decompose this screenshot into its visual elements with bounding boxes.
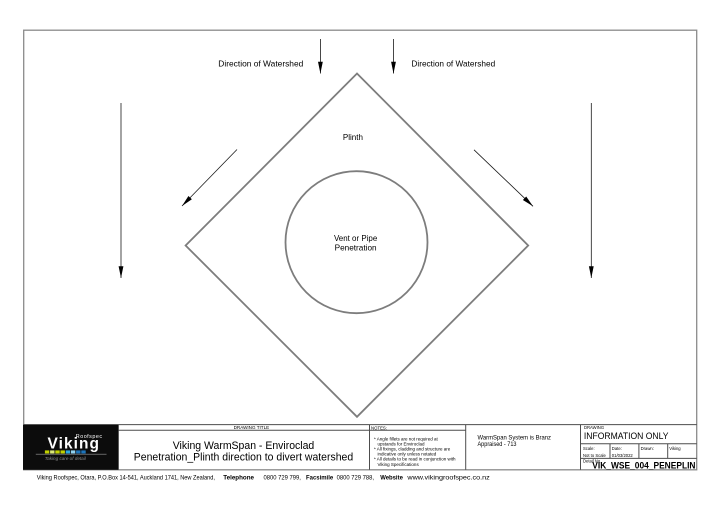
svg-text:Vent or Pipe: Vent or Pipe [334, 233, 378, 243]
svg-text:Plinth: Plinth [343, 132, 363, 142]
svg-text:Not to Scale: Not to Scale [583, 453, 606, 458]
svg-text:01/03/2022: 01/03/2022 [612, 453, 634, 458]
svg-text:NOTES:: NOTES: [371, 425, 387, 430]
svg-text:Facsimile: Facsimile [306, 475, 334, 482]
svg-text:0800 729 799,: 0800 729 799, [264, 475, 302, 482]
svg-text:INFORMATION ONLY: INFORMATION ONLY [584, 431, 669, 441]
svg-text:Telephone: Telephone [223, 475, 254, 482]
svg-text:Penetration_Plinth direction t: Penetration_Plinth direction to divert w… [134, 452, 353, 464]
svg-text:Date:: Date: [612, 446, 622, 451]
svg-text:Viking: Viking [48, 435, 101, 452]
svg-text:Website: Website [380, 475, 403, 482]
svg-text:Appraised - 713: Appraised - 713 [478, 441, 517, 448]
svg-text:Viking WarmSpan - Enviroclad: Viking WarmSpan - Enviroclad [173, 440, 315, 452]
svg-text:Viking: Viking [669, 446, 681, 451]
svg-text:Drawn:: Drawn: [641, 446, 654, 451]
svg-text:Direction of Watershed: Direction of Watershed [411, 58, 495, 68]
svg-text:0800 729 788,: 0800 729 788, [337, 475, 375, 482]
svg-text:VIK_WSE_004_PENEPLIN: VIK_WSE_004_PENEPLIN [592, 460, 695, 471]
svg-text:Viking Specifications: Viking Specifications [378, 462, 420, 467]
svg-text:Penetration: Penetration [335, 243, 377, 253]
svg-text:www.vikingroofspec.co.nz: www.vikingroofspec.co.nz [406, 475, 489, 482]
svg-text:DRAWING TITLE: DRAWING TITLE [234, 425, 270, 430]
svg-text:Taking care of detail: Taking care of detail [45, 456, 87, 461]
svg-text:DRAWING: DRAWING [584, 425, 604, 430]
svg-text:Viking Roofspec, Otara, P.O.Bo: Viking Roofspec, Otara, P.O.Box 14-541, … [37, 475, 216, 482]
svg-text:Direction of Watershed: Direction of Watershed [218, 58, 303, 68]
svg-text:Scale:: Scale: [583, 446, 595, 451]
